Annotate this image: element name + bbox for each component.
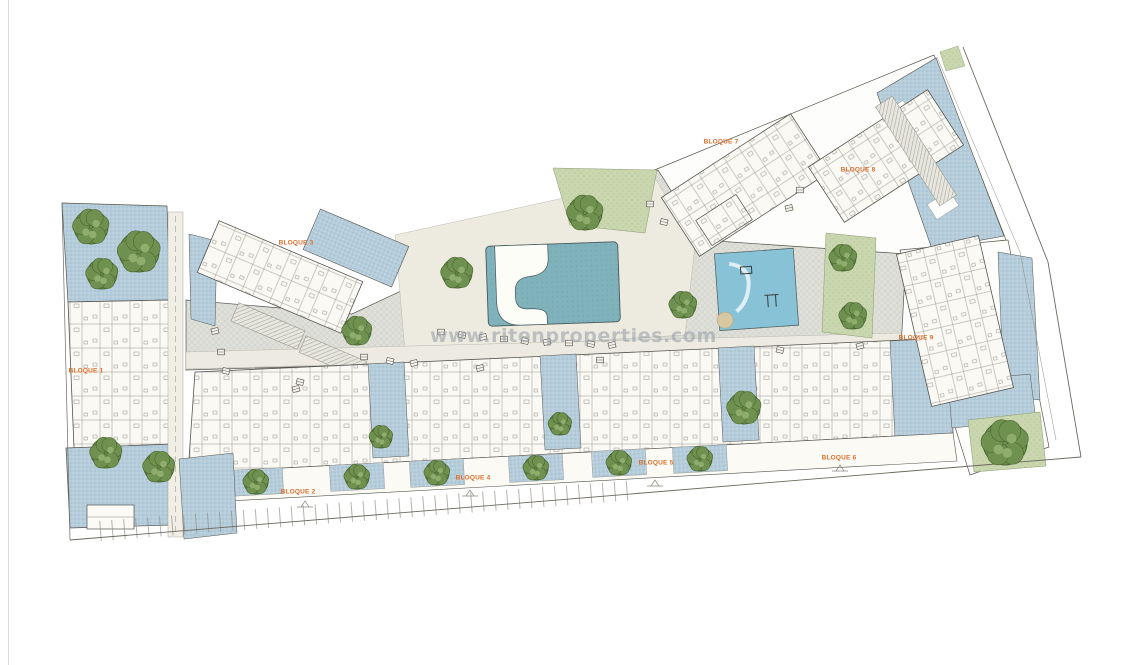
playground bbox=[712, 248, 798, 330]
furniture-icon bbox=[647, 201, 654, 207]
building-bloque-1 bbox=[68, 300, 173, 448]
site-plan-image: BLOQUE 1BLOQUE 2BLOQUE 3BLOQUE 4BLOQUE 5… bbox=[0, 0, 1130, 665]
furniture-icon bbox=[218, 349, 225, 355]
swimming-pool bbox=[486, 242, 621, 327]
south-band bbox=[179, 338, 957, 539]
lawn-corner bbox=[940, 46, 965, 71]
level-mark-icon bbox=[462, 490, 478, 496]
furniture-icon bbox=[501, 336, 508, 342]
boundary-e bbox=[1048, 262, 1081, 457]
furniture-icon bbox=[361, 354, 368, 360]
patio-blue-2 bbox=[540, 354, 581, 450]
furniture-icon bbox=[438, 329, 445, 335]
furniture-icon bbox=[597, 357, 604, 363]
level-mark-icon bbox=[647, 480, 663, 486]
level-mark-icon bbox=[297, 501, 313, 507]
site-plan-svg bbox=[0, 0, 1130, 665]
furniture-icon bbox=[566, 340, 573, 346]
furniture-icon bbox=[797, 187, 804, 193]
